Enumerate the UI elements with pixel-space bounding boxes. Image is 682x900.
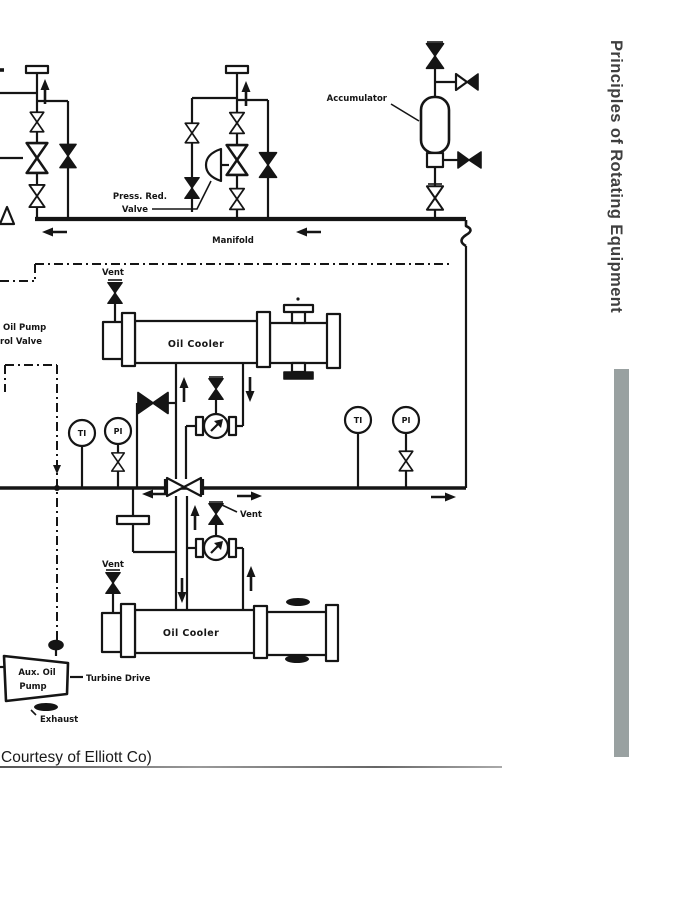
cutoff-triangle-symbol xyxy=(0,207,14,224)
main-oil-line xyxy=(0,488,466,502)
filter-flange xyxy=(196,417,203,435)
pi-right-label: PI xyxy=(402,416,411,425)
vent-valve-icon xyxy=(108,283,122,304)
vent-label-lower: Vent xyxy=(102,560,124,570)
exhaust-label: Exhaust xyxy=(40,715,78,725)
nozzle-stem xyxy=(292,312,305,323)
block-valve-icon xyxy=(30,112,44,132)
cooler-flange xyxy=(327,314,340,368)
pi-gauge-left: PI xyxy=(105,418,131,488)
top-nozzle xyxy=(286,598,310,606)
manifold-label: Manifold xyxy=(212,236,254,246)
accumulator-base xyxy=(427,153,443,167)
relief-valve-station-left xyxy=(0,66,76,237)
transfer-valve xyxy=(165,478,203,496)
ti-right-label: TI xyxy=(354,416,362,425)
cooler-flange xyxy=(326,605,338,661)
flow-arrow-up-icon xyxy=(180,377,189,402)
aux-oil-pump-turbine xyxy=(4,656,68,701)
flow-arrow-up-icon xyxy=(247,566,256,591)
aux-oil-pump-label-line2: Pump xyxy=(19,682,46,692)
bypass-valve-icon xyxy=(138,393,168,414)
accumulator-label: Accumulator xyxy=(327,94,388,104)
dot xyxy=(296,297,299,300)
ti-left-label: TI xyxy=(78,429,86,438)
oil-pump-control-valve-label-line2: rol Valve xyxy=(0,337,42,347)
flow-arrow-right-icon xyxy=(431,493,456,502)
vent-funnel-icon xyxy=(226,66,248,73)
ti-gauge-left: TI xyxy=(69,420,95,488)
cooler-head xyxy=(102,613,123,652)
valve-pilot-actuator-icon xyxy=(206,149,221,181)
cooler-flange xyxy=(121,604,135,657)
flow-arrow-left-icon xyxy=(296,228,321,237)
drain-valve-icon xyxy=(458,152,469,168)
block-valve-icon xyxy=(185,123,199,143)
orifice-plate xyxy=(117,516,149,524)
label-leader-line xyxy=(391,104,419,121)
top-nozzle-flange xyxy=(284,305,313,312)
flow-arrow-left-icon xyxy=(42,228,67,237)
turbine-drive-label: Turbine Drive xyxy=(86,674,151,684)
bottom-nozzle-flange xyxy=(284,372,313,379)
label-leader-line xyxy=(31,710,36,715)
oil-cooler-upper-label: Oil Cooler xyxy=(168,339,224,350)
filter-vent-valve-icon xyxy=(209,504,223,525)
closed-valve-icon xyxy=(185,178,199,199)
caption-rule xyxy=(0,766,502,768)
closed-bypass-valve-icon xyxy=(259,153,276,178)
pressure-reducing-valve-icon xyxy=(227,145,248,175)
filter-flange xyxy=(229,417,236,435)
flow-arrow-down-icon xyxy=(246,377,255,402)
gauge-valve-icon xyxy=(112,453,125,471)
cooler-flange xyxy=(122,313,135,366)
sidebar-decorative-bar xyxy=(614,369,629,757)
cooler-head xyxy=(103,322,123,359)
label-leader-line xyxy=(222,505,237,512)
lower-filter-assembly: Vent xyxy=(117,488,262,610)
vent-label-upper: Vent xyxy=(102,268,124,278)
flow-arrow-up-icon xyxy=(242,81,251,106)
cooler-shell xyxy=(267,612,327,655)
cooler-flange xyxy=(254,606,267,658)
vent-funnel-icon xyxy=(26,66,48,73)
relief-valve-icon xyxy=(27,143,48,173)
figure-caption: Courtesy of Elliott Co) xyxy=(1,749,152,767)
flow-arrow-left-icon xyxy=(142,490,167,499)
book-page: Press. Red. Valve Accumulator Manifold xyxy=(0,0,682,900)
filter-flange xyxy=(196,539,203,557)
filter-flange xyxy=(229,539,236,557)
drain-valve-icon xyxy=(469,152,481,168)
book-title-vertical: Principles of Rotating Equipment xyxy=(606,40,625,380)
block-valve-icon xyxy=(230,189,244,210)
charging-valve-icon xyxy=(467,74,478,90)
flow-arrow-right-icon xyxy=(237,492,262,501)
flow-arrow-down-icon xyxy=(178,578,187,603)
filter-vent-valve-icon xyxy=(209,379,223,400)
accumulator-vessel xyxy=(421,97,449,153)
exhaust-port xyxy=(34,703,58,711)
press-red-valve-label-line1: Press. Red. xyxy=(113,192,167,202)
block-valve-icon xyxy=(230,113,244,134)
bottom-nozzle xyxy=(285,655,309,663)
closed-bypass-valve-icon xyxy=(60,144,76,167)
nozzle-stem xyxy=(292,363,305,372)
accumulator-assembly: Accumulator xyxy=(327,42,481,218)
cooler-flange xyxy=(257,312,270,367)
signal-arrow-down-icon xyxy=(53,465,61,474)
pi-gauge-right: PI xyxy=(393,407,419,488)
lower-oil-cooler-assembly: Vent Oil Cooler xyxy=(102,560,338,663)
oil-cooler-lower-label: Oil Cooler xyxy=(163,628,219,639)
cooler-shell xyxy=(270,323,328,363)
gauge-valve-icon xyxy=(399,451,413,471)
block-valve-icon xyxy=(29,185,44,207)
pressure-reducing-valve-station: Press. Red. Valve xyxy=(113,66,277,218)
vent-valve-icon xyxy=(106,573,120,594)
closed-valve-icon xyxy=(426,44,443,69)
pi-left-label: PI xyxy=(114,427,123,436)
line-break-symbol xyxy=(462,220,471,246)
aux-oil-pump-label-line1: Aux. Oil xyxy=(18,668,55,678)
governor-icon xyxy=(49,641,63,650)
ti-gauge-right: TI xyxy=(345,407,371,488)
vent-label-filter: Vent xyxy=(240,510,262,520)
charging-valve-icon xyxy=(456,74,467,90)
press-red-valve-label-line2: Valve xyxy=(122,205,148,215)
oil-pump-control-valve-label-line1: Oil Pump xyxy=(3,323,46,333)
isolation-valve-icon xyxy=(427,186,443,209)
upper-oil-cooler-assembly: Vent Oil Cooler xyxy=(102,268,340,487)
flow-arrow-up-icon xyxy=(191,505,200,530)
